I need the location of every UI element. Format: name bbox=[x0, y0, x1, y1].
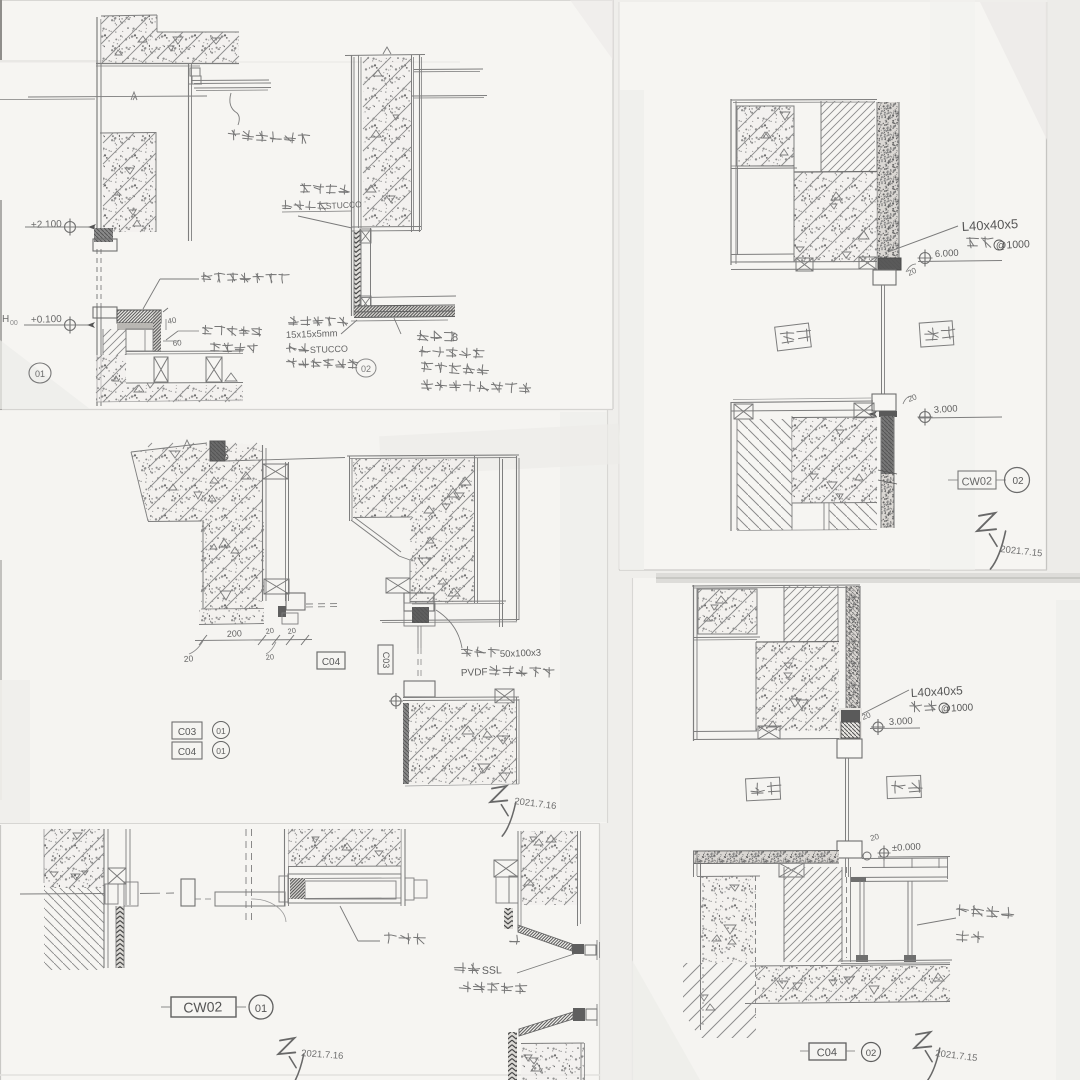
svg-text:02: 02 bbox=[1012, 476, 1024, 487]
svg-text:+0.100: +0.100 bbox=[31, 314, 63, 326]
svg-text:01: 01 bbox=[216, 726, 226, 736]
svg-text:C04: C04 bbox=[322, 657, 341, 668]
svg-text:200: 200 bbox=[227, 628, 243, 639]
svg-text:L40x40x5: L40x40x5 bbox=[961, 216, 1018, 234]
svg-text:3.000: 3.000 bbox=[889, 716, 913, 728]
svg-text:C04: C04 bbox=[178, 747, 197, 758]
svg-text:60: 60 bbox=[172, 338, 182, 348]
svg-text:C03: C03 bbox=[178, 727, 197, 738]
svg-text:CW02: CW02 bbox=[961, 475, 992, 488]
svg-text:SSL: SSL bbox=[482, 964, 502, 977]
svg-text:C03: C03 bbox=[381, 652, 391, 669]
svg-text:+2.100: +2.100 bbox=[31, 219, 63, 231]
svg-text:20: 20 bbox=[265, 652, 274, 662]
svg-text:20: 20 bbox=[265, 626, 275, 636]
svg-text:00: 00 bbox=[10, 320, 18, 327]
svg-text:02: 02 bbox=[866, 1048, 877, 1059]
svg-text:±0.000: ±0.000 bbox=[892, 841, 922, 854]
svg-text:C04: C04 bbox=[817, 1047, 838, 1060]
svg-text:3.000: 3.000 bbox=[933, 403, 957, 416]
svg-text:01: 01 bbox=[216, 746, 226, 756]
svg-text:STUCCO: STUCCO bbox=[326, 199, 363, 211]
svg-text:20: 20 bbox=[183, 653, 193, 664]
svg-text:PVDF: PVDF bbox=[461, 667, 488, 679]
svg-text:15x15x5mm: 15x15x5mm bbox=[286, 328, 338, 341]
svg-text:02: 02 bbox=[361, 364, 371, 374]
svg-text:50x100x3: 50x100x3 bbox=[500, 648, 542, 660]
svg-text:01: 01 bbox=[35, 369, 45, 379]
svg-text:6.000: 6.000 bbox=[935, 248, 959, 260]
svg-text:8: 8 bbox=[452, 332, 458, 344]
svg-text:STUCCO: STUCCO bbox=[310, 344, 348, 355]
svg-text:CW02: CW02 bbox=[183, 998, 223, 1015]
svg-text:01: 01 bbox=[255, 1003, 267, 1015]
svg-text:H: H bbox=[2, 314, 9, 325]
svg-text:20: 20 bbox=[287, 626, 297, 636]
svg-text:L40x40x5: L40x40x5 bbox=[910, 683, 963, 700]
